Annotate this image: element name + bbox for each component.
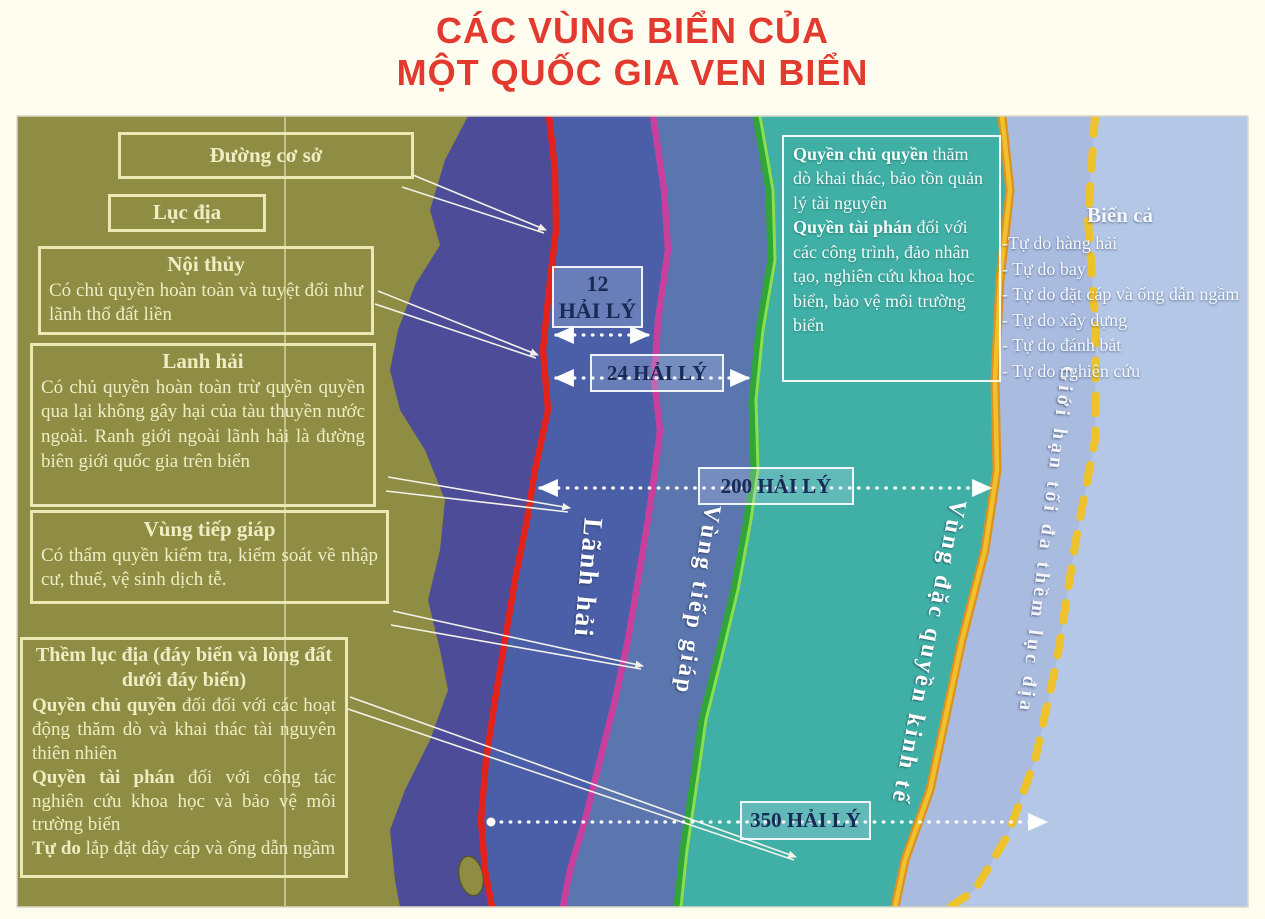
label-box-baseline: Đường cơ sở: [118, 132, 414, 179]
measurement-200-label: 200 HẢI LÝ: [721, 473, 832, 499]
shelf-segment-sovereign-rights: Quyền chủ quyền đối đối với các hoạt độn…: [32, 694, 336, 766]
high-seas-heading: Biển cả: [1010, 203, 1230, 228]
shelf-bold-3: Tự do: [32, 838, 81, 859]
shelf-bold-1: Quyền chủ quyền: [32, 695, 176, 716]
page-title: CÁC VÙNG BIỂN CỦA MỘT QUỐC GIA VEN BIỂN: [0, 10, 1265, 95]
internal-waters-heading: Nội thủy: [41, 251, 371, 279]
label-box-contiguous-zone: Vùng tiếp giáp Có thẩm quyền kiểm tra, k…: [30, 510, 389, 604]
high-seas-item: - Tự do xây dựng: [1002, 308, 1262, 334]
internal-waters-body: Có chủ quyền hoàn toàn và tuyệt đối như …: [41, 279, 371, 328]
contiguous-zone-body: Có thẩm quyền kiểm tra, kiểm soát về nhậ…: [33, 544, 386, 593]
continent-heading: Lục địa: [153, 199, 221, 227]
label-box-internal-waters: Nội thủy Có chủ quyền hoàn toàn và tuyệt…: [38, 246, 374, 335]
measurement-350-label: 350 HẢI LÝ: [750, 807, 861, 833]
shelf-text-3: lắp đặt dây cáp và ống dẫn ngầm: [81, 838, 335, 859]
measurement-box-350nm: 350 HẢI LÝ: [740, 801, 871, 840]
high-seas-item: -Tự do hàng hải: [1002, 231, 1262, 257]
high-seas-item: - Tự do bay: [1002, 257, 1262, 283]
eez-info-box: Quyền chủ quyền thăm dò khai thác, bảo t…: [782, 135, 1001, 382]
measurement-start-dot: [487, 818, 496, 827]
title-line-1: CÁC VÙNG BIỂN CỦA: [0, 10, 1265, 52]
continental-shelf-heading: Thềm lục địa (đáy biển và lòng đất dưới …: [32, 643, 336, 694]
eez-segment-jurisdiction: Quyền tài phán đối với các công trình, đ…: [793, 215, 990, 337]
eez-segment-sovereign-rights: Quyền chủ quyền thăm dò khai thác, bảo t…: [793, 142, 990, 215]
measurement-12-unit: HẢI LÝ: [559, 297, 637, 325]
high-seas-item: - Tự do đặt cáp và ống dẫn ngầm: [1002, 282, 1262, 308]
high-seas-freedoms-list: -Tự do hàng hải - Tự do bay - Tự do đặt …: [1002, 231, 1262, 384]
measurement-box-24nm: 24 HẢI LÝ: [590, 354, 724, 392]
label-box-continental-shelf: Thềm lục địa (đáy biển và lòng đất dưới …: [20, 637, 348, 878]
territorial-sea-body: Có chủ quyền hoàn toàn trừ quyền quyền q…: [33, 376, 373, 475]
eez-bold-2: Quyền tài phán: [793, 217, 912, 237]
baseline-heading: Đường cơ sở: [210, 142, 323, 170]
shelf-bold-2: Quyền tài phán: [32, 767, 175, 788]
measurement-24-label: 24 HẢI LÝ: [607, 360, 707, 386]
measurement-12-value: 12: [587, 270, 609, 298]
label-box-continent: Lục địa: [108, 194, 266, 232]
shelf-segment-freedom: Tự do lắp đặt dây cáp và ống dẫn ngầm: [32, 837, 336, 861]
high-seas-item: - Tự do nghiên cứu: [1002, 359, 1262, 385]
measurement-box-200nm: 200 HẢI LÝ: [698, 467, 854, 505]
label-box-territorial-sea: Lanh hải Có chủ quyền hoàn toàn trừ quyề…: [30, 343, 376, 507]
territorial-sea-heading: Lanh hải: [33, 348, 373, 376]
shelf-segment-jurisdiction: Quyền tài phán đối với công tác nghiên c…: [32, 766, 336, 838]
title-line-2: MỘT QUỐC GIA VEN BIỂN: [0, 52, 1265, 94]
high-seas-item: - Tự do đánh bắt: [1002, 333, 1262, 359]
contiguous-zone-heading: Vùng tiếp giáp: [33, 516, 386, 544]
measurement-box-12nm: 12 HẢI LÝ: [552, 266, 643, 328]
eez-bold-1: Quyền chủ quyền: [793, 144, 928, 164]
